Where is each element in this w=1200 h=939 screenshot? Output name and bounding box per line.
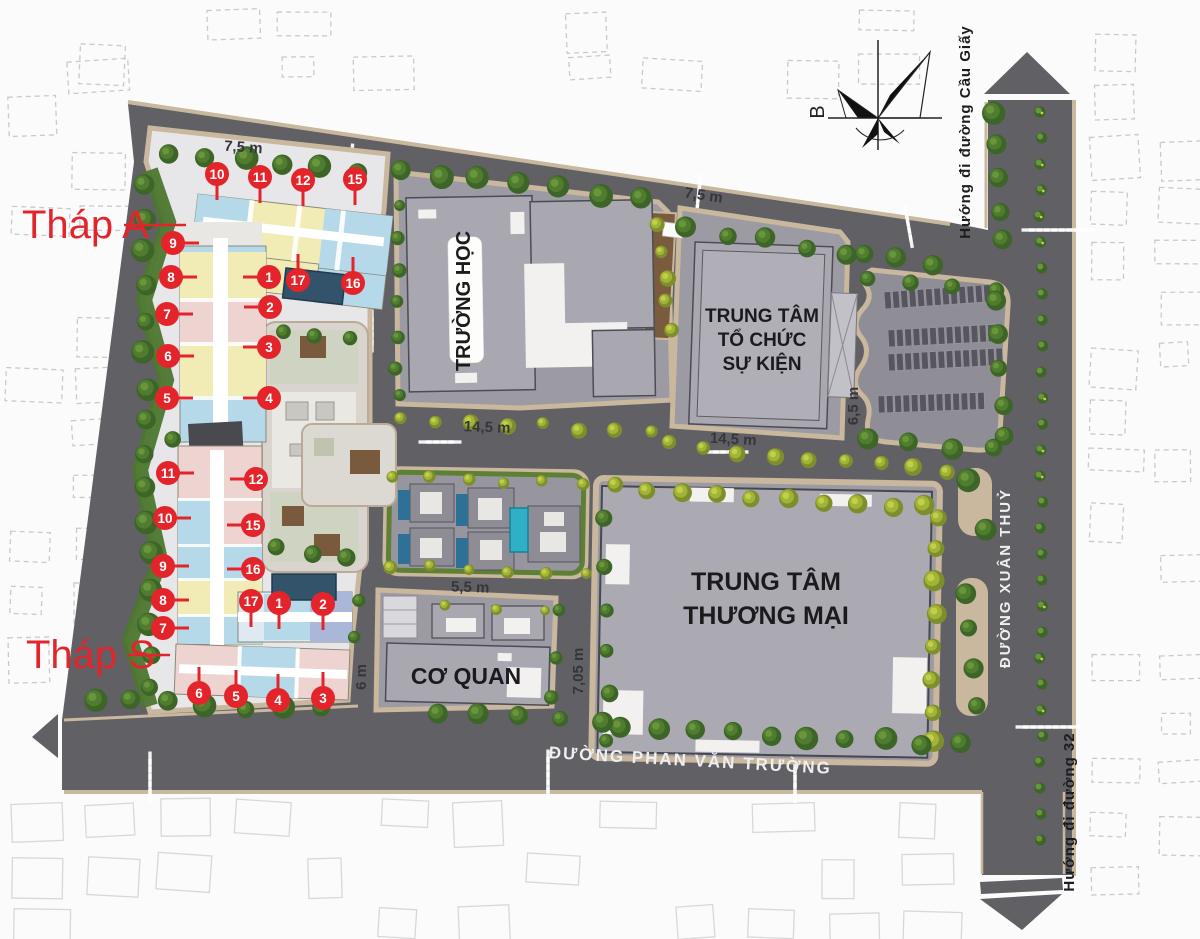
svg-text:3: 3 (319, 691, 327, 706)
svg-text:9: 9 (169, 236, 177, 251)
dim-7-05m: 7,05 m (570, 648, 587, 695)
compass-north-label: B (807, 105, 829, 118)
svg-text:4: 4 (265, 391, 273, 406)
villa-pool (456, 538, 468, 568)
svg-text:10: 10 (209, 167, 224, 182)
event-center-label-3: SỰ KIỆN (722, 353, 801, 375)
dim-6m: 6 m (353, 664, 370, 690)
event-center-label-2: TỔ CHỨC (718, 329, 807, 351)
svg-text:5: 5 (163, 391, 171, 406)
school-building (406, 194, 655, 400)
svg-text:4: 4 (274, 693, 282, 708)
svg-text:12: 12 (248, 472, 263, 487)
svg-text:17: 17 (290, 273, 305, 288)
patio-garden (302, 424, 396, 506)
site-plan-map: 1011121598765123417161112101591687171265… (0, 0, 1200, 939)
arrow-west-exit (32, 714, 58, 758)
svg-text:8: 8 (167, 270, 175, 285)
svg-text:1: 1 (265, 270, 273, 285)
svg-text:2: 2 (319, 597, 327, 612)
svg-text:6: 6 (164, 349, 172, 364)
dim-14-5m-school: 14,5 m (464, 418, 511, 437)
svg-text:15: 15 (347, 172, 363, 187)
office-label: CƠ QUAN (411, 663, 521, 689)
site-plan-svg: 1011121598765123417161112101591687171265… (0, 0, 1200, 939)
svg-text:10: 10 (157, 511, 172, 526)
svg-text:8: 8 (159, 593, 167, 608)
villa-pool (456, 494, 468, 526)
svg-text:12: 12 (295, 173, 310, 188)
villa-pool (398, 534, 410, 564)
arrow-to-road-32 (980, 894, 1062, 930)
svg-text:1: 1 (275, 596, 283, 611)
school-label: TRƯỜNG HỌC (451, 231, 475, 371)
dim-14-5m-event: 14,5 m (709, 430, 757, 449)
event-center-label-1: TRUNG TÂM (705, 305, 819, 327)
svg-text:3: 3 (265, 340, 273, 355)
svg-text:2: 2 (266, 300, 274, 315)
direction-cau-giay: Hướng đi đường Cầu Giấy (957, 25, 974, 239)
svg-text:15: 15 (245, 518, 261, 533)
svg-text:16: 16 (345, 276, 361, 291)
villa-pool (398, 490, 410, 520)
dim-5-5m: 5,5 m (451, 578, 490, 596)
svg-text:7: 7 (159, 621, 167, 636)
svg-text:6: 6 (195, 686, 203, 701)
direction-road-32: Hướng đi đường 32 (1061, 732, 1078, 891)
dim-7-5m-west: 7,5 m (224, 138, 263, 158)
compass-rose: B (807, 40, 942, 150)
dim-6-5m: 6,5 m (845, 387, 862, 425)
svg-text:9: 9 (159, 559, 167, 574)
svg-text:11: 11 (161, 466, 176, 481)
svg-text:16: 16 (245, 562, 261, 577)
svg-text:11: 11 (253, 170, 268, 185)
villa-pool-turquoise (510, 508, 528, 552)
mall-label-1: TRUNG TÂM (691, 566, 841, 596)
mall-label-2: THƯƠNG MẠI (683, 602, 849, 630)
svg-text:7: 7 (163, 307, 171, 322)
street-xuan-thuy: ĐƯỜNG XUÂN THUỶ (996, 488, 1014, 668)
arrow-to-cau-giay (984, 52, 1070, 94)
svg-text:5: 5 (232, 689, 240, 704)
svg-text:17: 17 (243, 594, 258, 609)
